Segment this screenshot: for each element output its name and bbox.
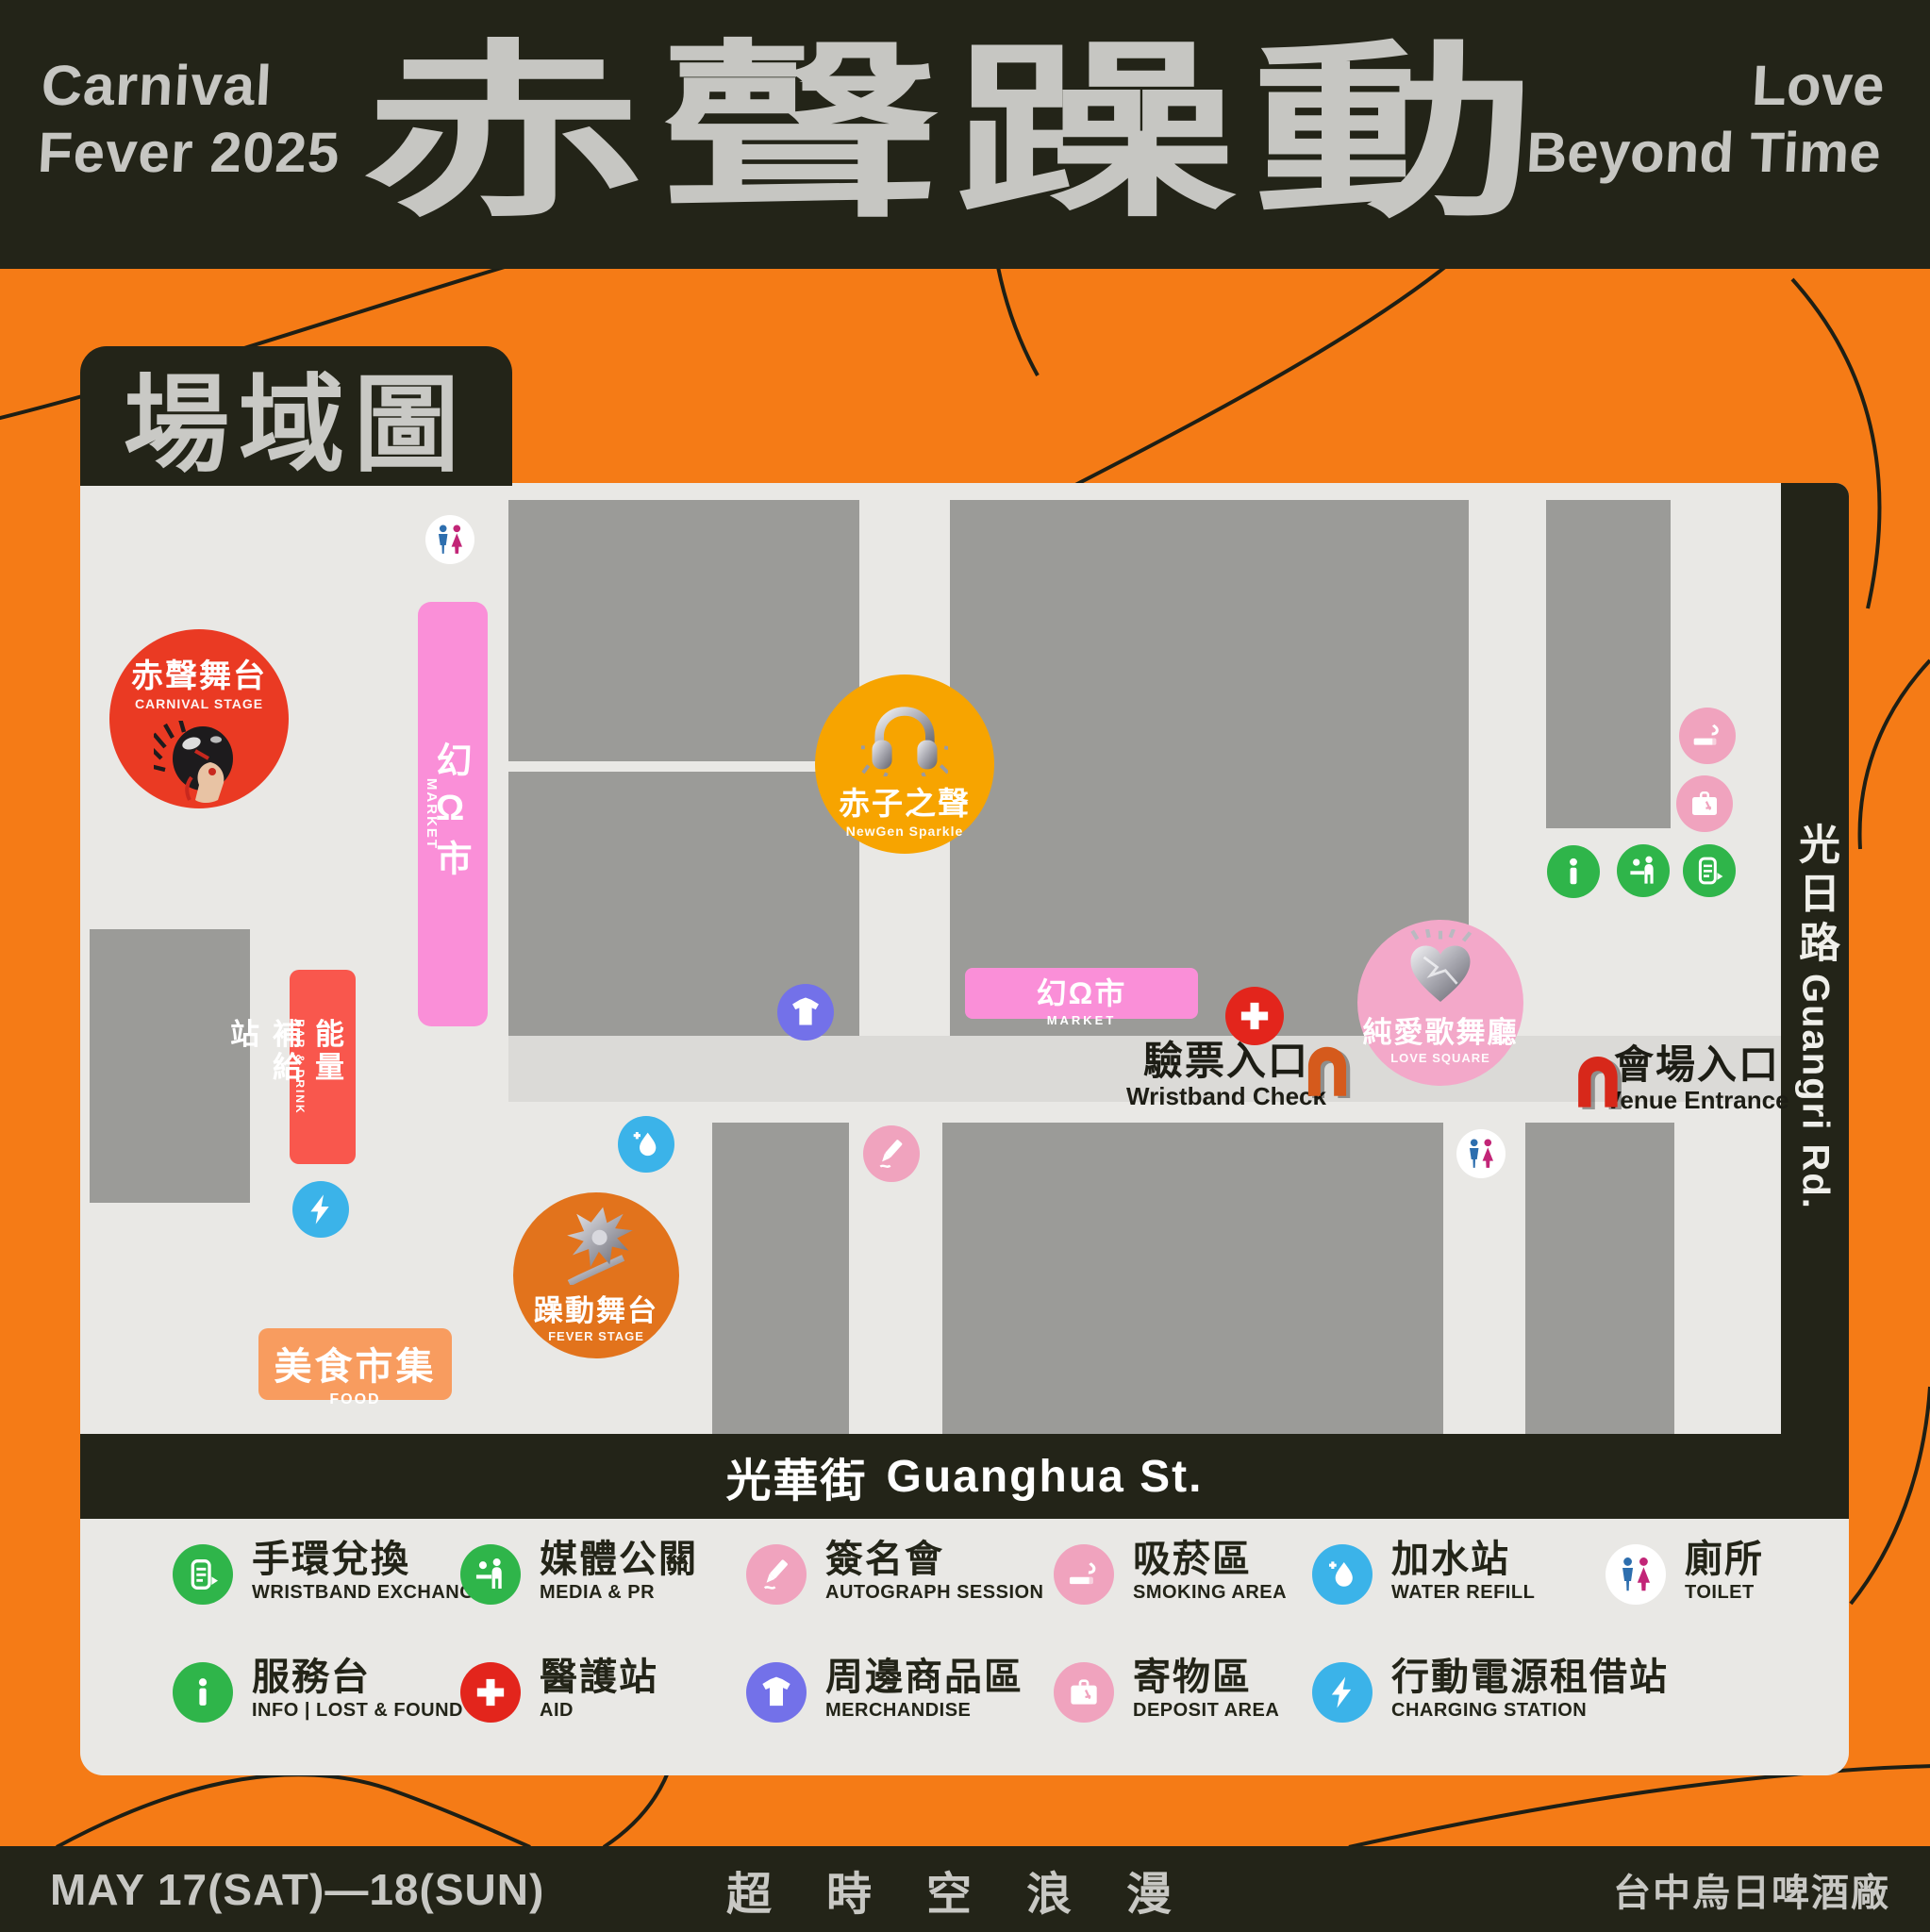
media-icon [460, 1544, 521, 1605]
map-section-tab: 場域圖 [80, 346, 512, 486]
wristband-entrance-arch-icon [1302, 1038, 1358, 1102]
map-block [712, 1123, 849, 1434]
food-market-badge: 美食市集 FOOD [258, 1328, 452, 1400]
legend-en: WATER REFILL [1391, 1582, 1535, 1604]
legend-cjk: 吸菸區 [1133, 1539, 1287, 1580]
legend-en: CHARGING STATION [1391, 1700, 1669, 1722]
cyber-girl-icon [154, 721, 244, 811]
legend-en: MEDIA & PR [540, 1582, 698, 1604]
water-refill-icon [618, 1116, 674, 1173]
legend-en: AUTOGRAPH SESSION [825, 1582, 1044, 1604]
market-badge: 幻Ω市 MARKET [965, 968, 1198, 1019]
legend-en: SMOKING AREA [1133, 1582, 1287, 1604]
legend-cjk: 醫護站 [540, 1657, 658, 1698]
fever-stage-en: FEVER STAGE [513, 1329, 679, 1343]
charging-icon [292, 1181, 349, 1238]
smoking-icon [1054, 1544, 1114, 1605]
map-section-title: 場域圖 [124, 340, 469, 492]
toilet-icon [425, 515, 474, 564]
market-strip-cjk: 幻Ω市 [424, 741, 476, 887]
merchandise-icon [746, 1662, 807, 1723]
legend-en: AID [540, 1700, 658, 1722]
aid-icon [460, 1662, 521, 1723]
wristband-icon [1683, 844, 1736, 897]
legend-cjk: 寄物區 [1133, 1657, 1279, 1698]
fever-stage-cjk: 躁動舞台 [513, 1287, 679, 1329]
map-block [1546, 500, 1671, 828]
banner-right-line1: Love [1528, 53, 1886, 120]
legend-cjk: 媒體公關 [540, 1539, 698, 1580]
headphones-icon [861, 690, 948, 776]
road-guangri-cjk: 光日路 [1785, 823, 1845, 970]
market-badge-cjk: 幻Ω市 [965, 970, 1198, 1013]
carnival-stage-cjk: 赤聲舞台 [109, 650, 289, 696]
bar-drink-cjk: 能量補給站 [221, 1019, 348, 1116]
info-icon [1547, 845, 1600, 898]
legend-cjk: 廁所 [1685, 1539, 1764, 1580]
map-block [508, 500, 859, 761]
smoking-icon [1679, 708, 1736, 764]
media-icon [1617, 844, 1670, 897]
banner-left-line1: Carnival [40, 53, 345, 120]
road-guanghua-en: Guanghua St. [887, 1451, 1204, 1503]
road-guanghua-cjk: 光華街 [725, 1443, 867, 1509]
aid-icon [1225, 987, 1284, 1045]
map-block [942, 1123, 1443, 1434]
market-strip: MARKET 幻Ω市 [418, 602, 488, 1026]
fever-stage-circle: 躁動舞台 FEVER STAGE [513, 1192, 679, 1358]
event-venue: 台中烏日啤酒廠 [1613, 1862, 1890, 1917]
food-en: FOOD [258, 1391, 452, 1408]
legend-cjk: 手環兌換 [252, 1539, 488, 1580]
autograph-icon [746, 1544, 807, 1605]
deposit-icon [1676, 775, 1733, 832]
water-refill-icon [1312, 1544, 1373, 1605]
autograph-icon [863, 1125, 920, 1182]
footer-bar: MAY 17(SAT)—18(SUN) 超時空浪漫 台中烏日啤酒廠 [0, 1846, 1930, 1932]
newgen-sparkle-cjk: 赤子之聲 [815, 778, 994, 824]
banner-left-lockup: Carnival Fever 2025 [36, 53, 345, 187]
love-square-en: LOVE SQUARE [1357, 1051, 1523, 1065]
merchandise-icon [777, 984, 834, 1041]
chrome-flower-icon [556, 1204, 637, 1285]
deposit-icon [1054, 1662, 1114, 1723]
legend-cjk: 簽名會 [825, 1539, 1044, 1580]
toilet-icon [1456, 1129, 1506, 1178]
legend-en: TOILET [1685, 1582, 1764, 1604]
toilet-icon [1606, 1544, 1666, 1605]
love-square-cjk: 純愛歌舞廳 [1357, 1008, 1523, 1051]
road-guanghua: 光華街 Guanghua St. [80, 1434, 1849, 1519]
love-square-circle: 純愛歌舞廳 LOVE SQUARE [1357, 920, 1523, 1086]
charging-icon [1312, 1662, 1373, 1723]
event-dates: MAY 17(SAT)—18(SUN) [50, 1864, 544, 1915]
road-guangri: 光日路 Guangri Rd. [1781, 483, 1849, 1434]
banner-right-lockup: Love Beyond Time [1525, 53, 1887, 187]
wristband-icon [173, 1544, 233, 1605]
market-badge-en: MARKET [965, 1013, 1198, 1027]
legend-cjk: 周邊商品區 [825, 1657, 1023, 1698]
chrome-heart-icon [1401, 929, 1480, 1008]
info-icon [173, 1662, 233, 1723]
carnival-stage-circle: 赤聲舞台 CARNIVAL STAGE [109, 629, 289, 808]
legend-cjk: 服務台 [252, 1657, 463, 1698]
top-banner: Carnival Fever 2025 赤聲躁動 Love Beyond Tim… [0, 0, 1930, 269]
newgen-sparkle-en: NewGen Sparkle [815, 824, 994, 839]
road-guangri-en: Guangri Rd. [1794, 974, 1837, 1210]
legend-cjk: 加水站 [1391, 1539, 1535, 1580]
banner-left-line2: Fever 2025 [36, 120, 341, 187]
food-cjk: 美食市集 [258, 1336, 452, 1391]
legend-en: MERCHANDISE [825, 1700, 1023, 1722]
venue-entrance-arch-icon [1572, 1047, 1630, 1113]
map-block [1525, 1123, 1674, 1434]
legend-en: INFO | LOST & FOUND [252, 1700, 463, 1722]
newgen-sparkle-circle: 赤子之聲 NewGen Sparkle [815, 675, 994, 854]
event-title: 赤聲躁動 [361, 40, 1550, 228]
legend-en: DEPOSIT AREA [1133, 1700, 1279, 1722]
legend-en: WRISTBAND EXCHANGE [252, 1582, 488, 1604]
event-slogan: 超時空浪漫 [726, 1857, 1226, 1923]
bar-drink-strip: BAR & DRINK 能量補給站 [290, 970, 356, 1164]
legend-cjk: 行動電源租借站 [1391, 1657, 1669, 1698]
banner-right-line2: Beyond Time [1525, 120, 1883, 187]
carnival-stage-en: CARNIVAL STAGE [109, 696, 289, 711]
